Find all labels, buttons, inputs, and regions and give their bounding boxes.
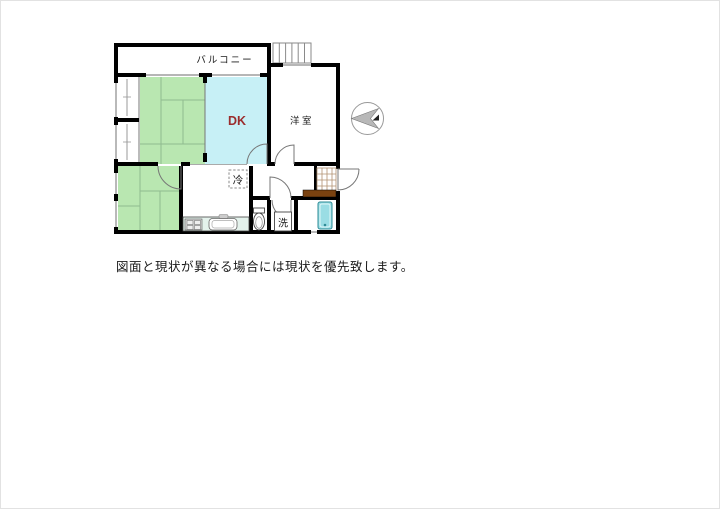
genkan-entry xyxy=(303,168,336,197)
stairs-icon xyxy=(273,43,311,63)
compass-icon xyxy=(352,103,384,135)
tatami-room-upper xyxy=(140,77,205,164)
kitchen-counter xyxy=(183,215,249,232)
washer-label: 洗 xyxy=(278,218,288,230)
balcony-label: バルコニー xyxy=(196,55,253,66)
floor-plan-page: バルコニー DK 洋室 冷 洗 図面と現状が異なる場合には現状を優先致します。 xyxy=(0,0,720,509)
disclaimer-text: 図面と現状が異なる場合には現状を優先致します。 xyxy=(116,256,414,275)
genkan-tile xyxy=(317,168,336,191)
western-room-door-arc xyxy=(275,145,294,164)
dk-label: DK xyxy=(228,114,246,128)
entrance-door-arc xyxy=(338,169,359,190)
refrigerator-label: 冷 xyxy=(233,174,244,187)
western-room-label: 洋室 xyxy=(290,115,314,127)
toilet-icon xyxy=(254,208,265,230)
tatami-room-lower xyxy=(118,166,179,230)
genkan-step xyxy=(303,190,336,197)
stove-icon xyxy=(185,219,202,230)
hall-door-arc xyxy=(270,177,291,198)
bathtub-icon xyxy=(318,202,332,229)
floor-plan-drawing: バルコニー DK 洋室 冷 洗 xyxy=(1,1,720,509)
